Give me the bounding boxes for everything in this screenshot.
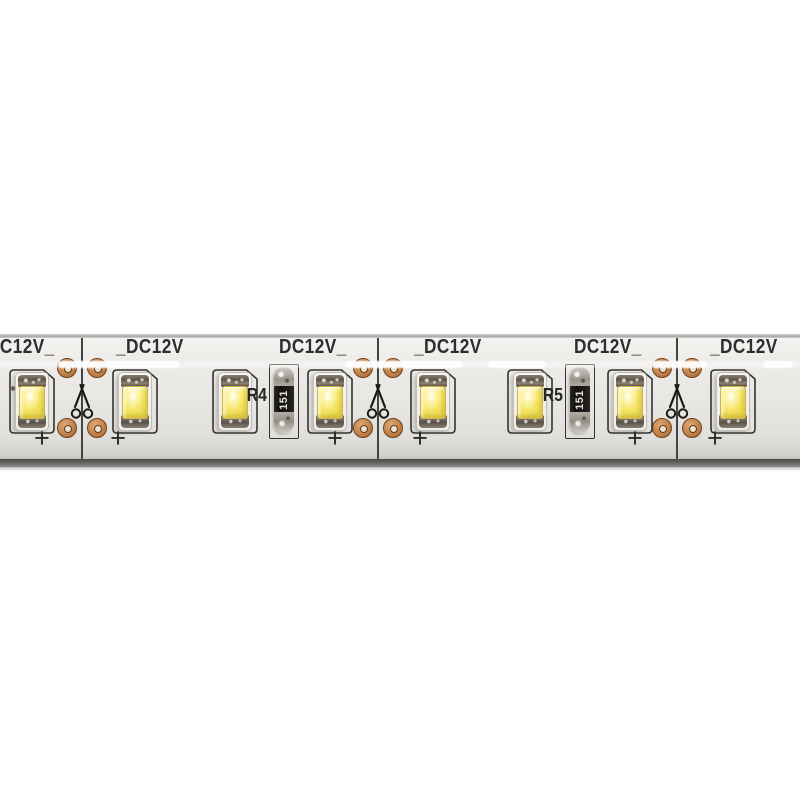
resistor: 151 — [274, 367, 294, 433]
solder-pad — [682, 358, 702, 378]
led-phosphor — [720, 386, 746, 419]
polarity-plus: + — [625, 428, 645, 448]
strip-shadow — [0, 467, 800, 471]
solder-pad — [57, 418, 77, 438]
pad-hole — [94, 425, 102, 433]
resistor-end-cap — [274, 367, 294, 388]
resistor-end-cap — [570, 412, 590, 433]
led-phosphor — [19, 386, 45, 419]
pad-hole — [659, 425, 667, 433]
led-strip-product-photo: DC12V__DC12VDC12V__DC12VDC12V__DC12V151R… — [0, 0, 800, 800]
pad-hole — [94, 365, 102, 373]
pad-hole — [390, 365, 398, 373]
pad-hole — [64, 425, 72, 433]
voltage-label: _DC12V — [414, 340, 482, 356]
resistor-designator: R4 — [237, 386, 267, 404]
resistor: 151 — [570, 367, 590, 433]
solder-pad — [87, 358, 107, 378]
solder-pad — [383, 358, 403, 378]
scissors-icon — [70, 384, 94, 420]
solder-pad — [57, 358, 77, 378]
voltage-label: _DC12V — [710, 340, 778, 356]
dust-speck — [11, 386, 15, 391]
pad-hole — [689, 365, 697, 373]
scissors-icon — [665, 384, 689, 420]
polarity-plus: + — [705, 428, 725, 448]
polarity-plus: + — [325, 428, 345, 448]
solder-pad — [383, 418, 403, 438]
pad-hole — [64, 365, 72, 373]
resistor-value: 151 — [274, 386, 294, 414]
voltage-label: DC12V_ — [0, 340, 55, 356]
pad-hole — [390, 425, 398, 433]
voltage-label: DC12V_ — [574, 340, 642, 356]
led-phosphor — [317, 386, 343, 419]
solder-pad — [682, 418, 702, 438]
resistor-value: 151 — [570, 386, 590, 414]
polarity-plus: + — [108, 428, 128, 448]
led-phosphor — [617, 386, 643, 419]
solder-pad — [87, 418, 107, 438]
pad-hole — [360, 365, 368, 373]
led-phosphor — [420, 386, 446, 419]
led-phosphor — [122, 386, 148, 419]
resistor-end-cap — [274, 412, 294, 433]
voltage-label: DC12V_ — [279, 340, 347, 356]
voltage-label: _DC12V — [116, 340, 184, 356]
resistor-designator: R5 — [533, 386, 563, 404]
solder-pad — [353, 418, 373, 438]
resistor-end-cap — [570, 367, 590, 388]
solder-pad — [353, 358, 373, 378]
strip-bottom-edge — [0, 459, 800, 467]
polarity-plus: + — [32, 428, 52, 448]
solder-pad — [652, 418, 672, 438]
polarity-plus: + — [410, 428, 430, 448]
pad-hole — [659, 365, 667, 373]
pad-hole — [689, 425, 697, 433]
pad-hole — [360, 425, 368, 433]
solder-pad — [652, 358, 672, 378]
scissors-icon — [366, 384, 390, 420]
led-strip: DC12V__DC12VDC12V__DC12VDC12V__DC12V151R… — [0, 334, 800, 471]
